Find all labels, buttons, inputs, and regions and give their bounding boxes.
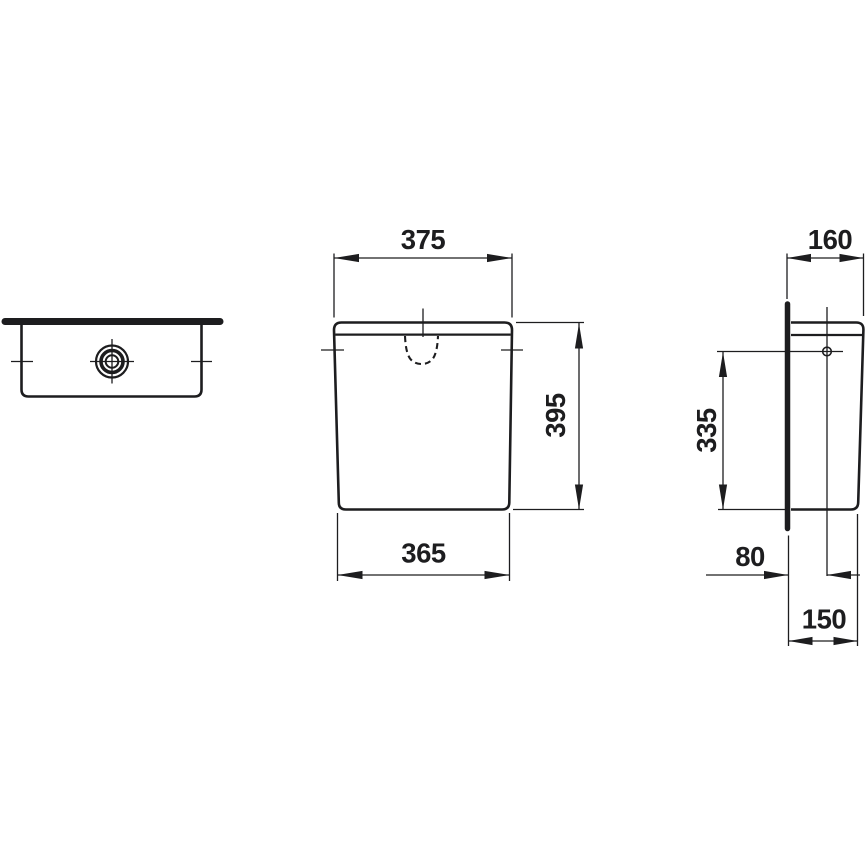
technical-drawing: 375 395 365 <box>0 0 868 868</box>
side-view: 160 335 80 150 <box>691 224 864 646</box>
dim-side-inlet-height: 335 <box>691 352 786 510</box>
arrowhead-pointing-right <box>764 571 788 579</box>
dim-label: 365 <box>401 538 446 569</box>
arrowhead-down <box>575 485 583 510</box>
dim-front-width-bottom: 365 <box>338 513 510 581</box>
arrowhead-right <box>485 571 510 579</box>
arrowhead-right <box>840 254 864 262</box>
dim-label: 160 <box>808 224 853 255</box>
arrowhead-down <box>719 485 727 510</box>
arrowhead-left <box>789 637 813 645</box>
drawing-canvas: 375 395 365 <box>0 0 868 868</box>
dim-front-width-top: 375 <box>334 224 512 318</box>
dim-label: 395 <box>540 393 571 438</box>
dim-label: 150 <box>802 604 847 635</box>
arrowhead-pointing-left <box>827 571 851 579</box>
arrowhead-up <box>575 324 583 349</box>
dim-label: 375 <box>401 224 446 255</box>
flush-button-icon <box>90 339 134 384</box>
dim-front-height: 395 <box>513 323 584 510</box>
arrowhead-left <box>338 571 363 579</box>
arrowhead-right <box>834 637 858 645</box>
top-view <box>5 322 220 397</box>
front-view-body-outline <box>334 323 512 510</box>
arrowhead-right <box>487 254 512 262</box>
dim-label: 80 <box>735 541 765 572</box>
dim-side-depth-bottom: 150 <box>789 514 858 646</box>
hidden-lid-recess-outline <box>405 336 438 364</box>
arrowhead-left <box>787 254 811 262</box>
front-view: 375 395 365 <box>321 224 584 581</box>
dim-label: 335 <box>691 408 722 453</box>
arrowhead-up <box>719 352 727 377</box>
arrowhead-left <box>334 254 359 262</box>
dim-side-depth-top: 160 <box>787 224 864 316</box>
